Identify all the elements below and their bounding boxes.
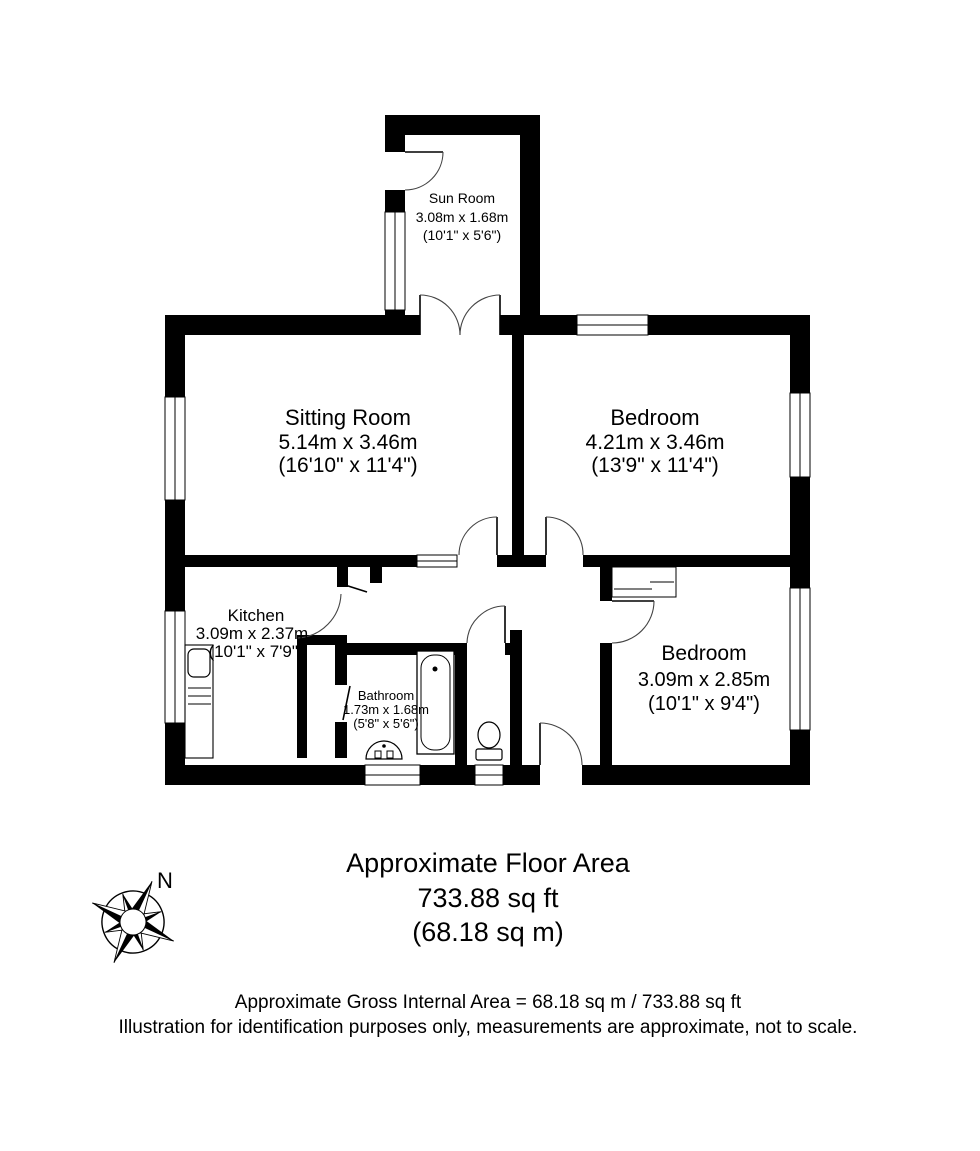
wall-wc-top-stub (505, 643, 522, 655)
wall-mid-horizontal-center (497, 555, 546, 567)
wall-bedroom2-left-lower (600, 643, 612, 765)
room-name: Sitting Room (285, 405, 411, 430)
wall-mid-horizontal-right (583, 555, 810, 567)
window-kitchen-left (165, 611, 185, 723)
wall-sunroom-right (520, 115, 540, 335)
door-sunroom-entry (405, 152, 443, 190)
footer-disclaimer: Approximate Gross Internal Area = 68.18 … (119, 992, 858, 1038)
window-bedroom1-right (790, 393, 810, 477)
floor-plan-page: Sun Room 3.08m x 1.68m (10'1" x 5'6") Si… (0, 0, 980, 1151)
area-summary: Approximate Floor Area 733.88 sq ft (68.… (346, 848, 631, 947)
wall-bathroom-left-lower (335, 722, 347, 758)
compass-north-label: N (157, 868, 173, 893)
wardrobe-bedroom2 (612, 567, 676, 597)
room-label-bathroom: Bathroom 1.73m x 1.68m (5'8" x 5'6") (343, 688, 429, 731)
kitchen-counter (185, 645, 213, 758)
room-dim-imperial: (5'8" x 5'6") (353, 716, 419, 731)
window-sunroom-left (385, 212, 405, 310)
room-dim-metric: 5.14m x 3.46m (279, 431, 418, 454)
door-french-left (420, 295, 460, 335)
wall-right-mid (790, 477, 810, 588)
door-bedroom1 (546, 517, 583, 555)
wall-divider-sitting-bedroom (512, 335, 524, 555)
window-bedroom2-right (790, 588, 810, 730)
door-french-right (460, 295, 500, 335)
wall-bedroom2-left-upper (600, 555, 612, 601)
window-bedroom1-top (577, 315, 648, 335)
wall-left-upper (165, 315, 185, 397)
door-sitting-room (459, 517, 497, 555)
basin (366, 741, 402, 759)
kitchen-sink (188, 649, 210, 677)
wall-top-right (648, 315, 810, 335)
room-dim-metric: 4.21m x 3.46m (586, 431, 725, 454)
room-label-bedroom-1: Bedroom 4.21m x 3.46m (13'9" x 11'4") (586, 405, 725, 477)
room-name: Bedroom (610, 405, 699, 430)
wall-sunroom-top (385, 115, 540, 135)
wall-mid-horizontal-left (177, 555, 417, 567)
door-entrance (540, 723, 582, 765)
room-name: Sun Room (429, 190, 495, 206)
area-summary-sqft: 733.88 sq ft (417, 883, 559, 913)
room-label-sun-room: Sun Room 3.08m x 1.68m (10'1" x 5'6") (416, 190, 509, 243)
room-dim-imperial: (10'1" x 7'9") (208, 642, 303, 661)
area-summary-title: Approximate Floor Area (346, 848, 631, 878)
footer-gross-area: Approximate Gross Internal Area = 68.18 … (235, 992, 742, 1013)
area-summary-sqm: (68.18 sq m) (412, 917, 564, 947)
wall-sunroom-left-upper (385, 115, 405, 152)
wall-kitchen-doorway-stub-left (337, 567, 348, 587)
wall-kitchen-doorway-stub-right (370, 567, 382, 583)
room-dim-imperial: (16'10" x 11'4") (278, 454, 417, 477)
wall-bottom-seg2 (420, 765, 475, 785)
opening-hall-threshold (417, 555, 457, 567)
door-kitchen (298, 585, 367, 638)
room-dim-metric: 1.73m x 1.68m (343, 702, 429, 717)
room-name: Bathroom (358, 688, 414, 703)
toilet (476, 722, 502, 760)
wall-bottom-seg3 (503, 765, 540, 785)
room-label-bedroom-2: Bedroom 3.09m x 2.85m (10'1" x 9'4") (638, 642, 770, 715)
room-dim-imperial: (13'9" x 11'4") (591, 454, 719, 477)
floor-plan: Sun Room 3.08m x 1.68m (10'1" x 5'6") Si… (0, 0, 980, 1151)
room-dim-imperial: (10'1" x 5'6") (423, 227, 501, 243)
wall-bottom-seg1 (165, 765, 365, 785)
window-sitting-room-left (165, 397, 185, 500)
room-label-kitchen: Kitchen 3.09m x 2.37m (10'1" x 7'9") (196, 606, 308, 661)
wall-bathroom-right (455, 643, 467, 765)
window-wc-bottom (475, 765, 503, 785)
room-name: Kitchen (228, 606, 285, 625)
wall-sunroom-left-mid (385, 190, 405, 212)
door-wc (467, 606, 505, 643)
wall-bottom-seg4 (582, 765, 810, 785)
wall-bathroom-left-upper (335, 645, 347, 685)
room-dim-imperial: (10'1" x 9'4") (648, 693, 760, 715)
room-labels: Sun Room 3.08m x 1.68m (10'1" x 5'6") Si… (196, 190, 770, 731)
room-dim-metric: 3.09m x 2.85m (638, 669, 770, 691)
window-bathroom-bottom (365, 765, 420, 785)
compass-rose: N (73, 862, 193, 982)
room-dim-metric: 3.09m x 2.37m (196, 624, 308, 643)
footer-disclaimer-line: Illustration for identification purposes… (119, 1017, 858, 1038)
room-label-sitting-room: Sitting Room 5.14m x 3.46m (16'10" x 11'… (278, 405, 417, 477)
room-name: Bedroom (661, 642, 746, 665)
wall-top-mid (500, 315, 577, 335)
wall-kitchen-right (297, 645, 307, 758)
room-dim-metric: 3.08m x 1.68m (416, 209, 509, 225)
wall-right-upper (790, 315, 810, 393)
wall-top-left (165, 315, 420, 335)
door-bedroom2 (612, 601, 654, 643)
